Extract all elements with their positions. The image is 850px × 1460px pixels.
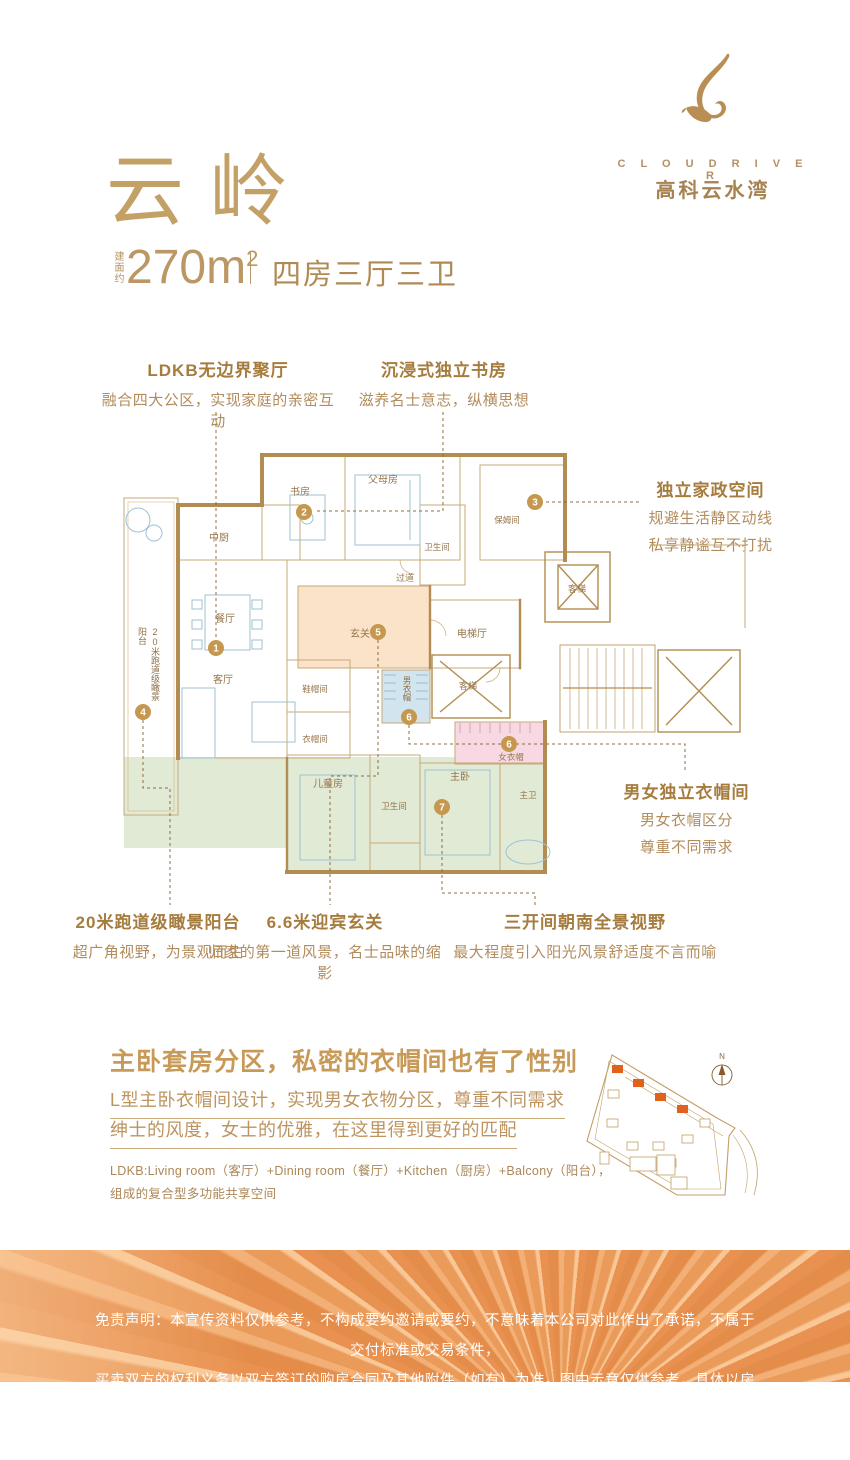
room-label-cloak: 衣帽间 (302, 734, 328, 744)
room-label-bath-up: 卫生间 (424, 542, 450, 552)
room-label-men-cloak-vertical: 男衣帽 (401, 676, 413, 714)
callout-study-title: 沉浸式独立书房 (324, 356, 564, 381)
section-line2: 绅士的风度，女士的优雅，在这里得到更好的匹配 (110, 1116, 517, 1149)
room-label-kids: 儿童房 (313, 777, 343, 790)
page-title: 云 岭 (106, 152, 290, 230)
site-highlighted-buildings (612, 1065, 688, 1113)
disclaimer: 免责声明：本宣传资料仅供参考，不构成要约邀请或要约，不意味着本公司对此作出了承诺… (95, 1306, 755, 1426)
marker-6-women: 6 (501, 736, 517, 752)
compass-icon: N (712, 1052, 732, 1085)
svg-text:6: 6 (506, 740, 512, 751)
room-label-corridor: 过道 (396, 572, 414, 583)
svg-text:4: 4 (140, 708, 146, 719)
svg-text:6: 6 (406, 713, 412, 724)
room-label-women-cloak: 女衣帽 (498, 752, 524, 762)
room-label-master-bath: 主卫 (519, 790, 537, 800)
svg-text:7: 7 (439, 803, 445, 814)
compass-north-label: N (719, 1052, 725, 1061)
callout-ldkb-title: LDKB无边界聚厅 (98, 356, 338, 381)
swan-logo-icon (676, 52, 754, 152)
room-label-elevator-hall: 电梯厅 (457, 627, 487, 640)
leader-study (315, 412, 443, 511)
layout-spec: 四房三厅三卫 (272, 251, 458, 293)
room-label-bath-down: 卫生间 (381, 801, 407, 811)
area-prefix: 建面约 (110, 251, 125, 291)
svg-text:3: 3 (532, 498, 538, 509)
marker-7: 7 (434, 799, 450, 815)
room-label-master: 主卧 (450, 770, 470, 783)
section-note1: LDKB:Living room（客厅）+Dining room（餐厅）+Kit… (110, 1160, 611, 1179)
section-line1: L型主卧衣帽间设计，实现男女衣物分区，尊重不同需求 (110, 1086, 565, 1119)
callout-south-desc: 最大程度引入阳光风景舒适度不言而喻 (445, 941, 725, 962)
section-line1-text: L型主卧衣帽间设计，实现男女衣物分区，尊重不同需求 (110, 1086, 565, 1119)
disclaimer-line2: 买卖双方的权利义务以双方签订的购房合同及其他附件（如有）为准。图中示意仅供参考，… (95, 1366, 755, 1426)
marker-5: 5 (370, 624, 386, 640)
room-label-nanny: 保姆间 (494, 515, 520, 525)
room-label-kitchen: 中厨 (209, 531, 229, 544)
room-label-elevator1: 客梯 (568, 583, 586, 594)
area-superscript: 2 (246, 246, 258, 271)
marker-2: 2 (296, 504, 312, 520)
floor-plan: 中厨 书房 父母房 卫生间 保姆间 过道 餐厅 玄关 客厅 鞋帽间 衣帽间 儿童… (100, 405, 790, 925)
spec-divider (250, 252, 251, 284)
room-label-shoe: 鞋帽间 (302, 684, 328, 694)
floorplan-poster: C L O U D R I V E R 高科云水湾 云 岭 建面约 270m2 … (0, 0, 850, 1460)
room-label-parents: 父母房 (368, 473, 398, 486)
svg-text:1: 1 (213, 644, 219, 655)
site-plan: N (575, 1035, 805, 1210)
callout-study: 沉浸式独立书房 滋养名士意志，纵横思想 (324, 356, 564, 410)
disclaimer-line1: 免责声明：本宣传资料仅供参考，不构成要约邀请或要约，不意味着本公司对此作出了承诺… (95, 1306, 755, 1366)
callout-foyer-desc: 归家的第一道风景，名士品味的缩影 (205, 941, 445, 983)
zone-foyer (298, 586, 430, 668)
area-number: 270m (126, 241, 246, 294)
core-shafts (432, 552, 740, 732)
section-note2: 组成的复合型多功能共享空间 (110, 1183, 276, 1202)
room-label-study: 书房 (290, 485, 310, 498)
marker-1: 1 (208, 640, 224, 656)
room-label-elevator2: 客梯 (459, 680, 477, 691)
svg-text:5: 5 (375, 628, 381, 639)
svg-text:2: 2 (301, 508, 307, 519)
section-line2-text: 绅士的风度，女士的优雅，在这里得到更好的匹配 (110, 1116, 517, 1149)
room-label-balcony-vertical: 20米跑道级瞰景阳台 (136, 627, 162, 709)
section-heading: 主卧套房分区，私密的衣帽间也有了性别 (110, 1042, 578, 1078)
brand-name-cn: 高科云水湾 (613, 174, 813, 203)
room-label-foyer: 玄关 (350, 627, 370, 640)
marker-3: 3 (527, 494, 543, 510)
area-value: 270m2 (126, 240, 258, 295)
room-label-living: 客厅 (213, 673, 233, 686)
room-label-dining: 餐厅 (215, 612, 235, 625)
